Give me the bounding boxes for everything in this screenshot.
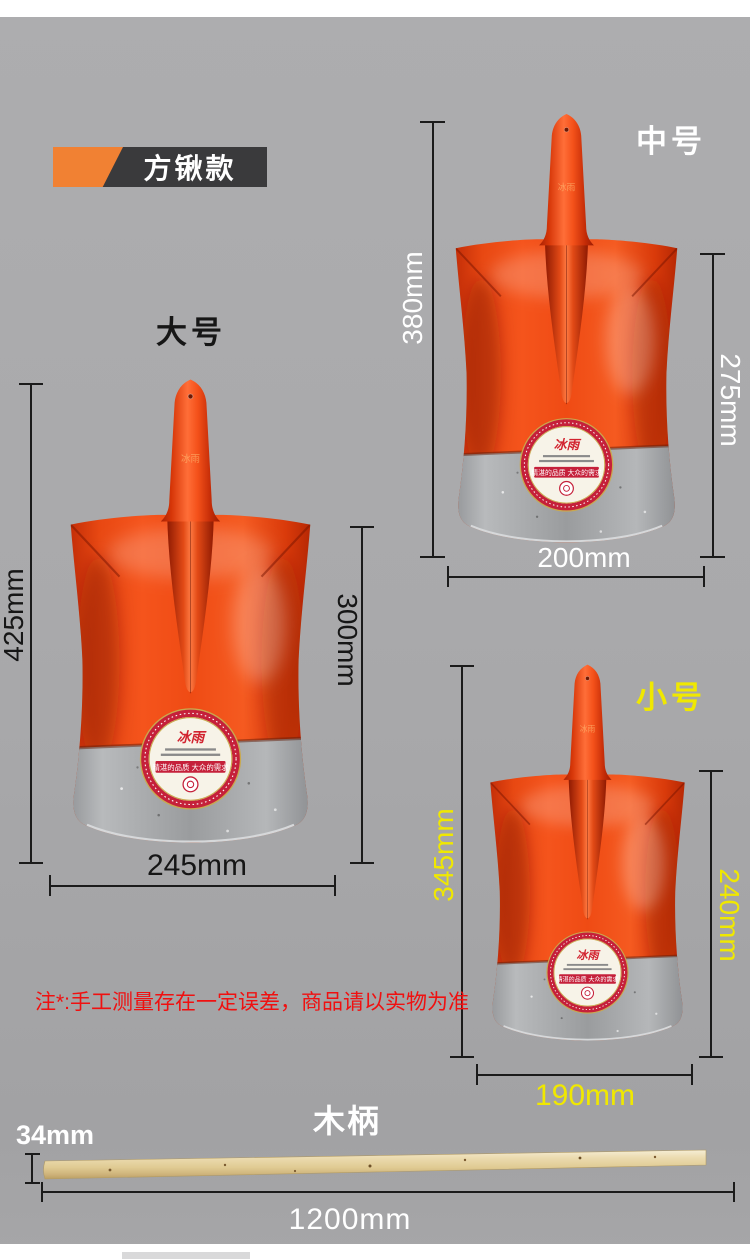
small-blade-height-line [710,771,712,1058]
wooden-handle-photo [40,1146,710,1186]
handle-title: 木柄 [287,1096,407,1142]
size-label-large: 大号 [156,307,226,352]
tick [700,556,725,558]
handle-diameter-line [31,1154,33,1183]
tick [700,253,725,255]
style-banner: 方锹款 [53,147,267,187]
shovel-photo-small [480,661,695,1057]
tick [420,121,445,123]
tick [49,875,51,896]
tick [350,526,374,528]
small-total-height-label: 345mm [429,795,459,915]
tick [19,862,43,864]
large-total-height-label: 425mm [0,555,29,675]
tick [350,862,374,864]
tick [450,1056,474,1058]
tick [699,1056,723,1058]
tick [25,1182,40,1184]
tick [334,875,336,896]
large-total-height-line [30,384,32,864]
small-blade-height-label: 240mm [714,855,744,975]
bottom-white-strip [0,1244,750,1259]
tick [450,665,474,667]
product-dimension-image: 冰雨 冰雨 精湛的品质 大众的需求 方 [0,0,750,1259]
tick [703,566,705,587]
tick [476,1064,478,1085]
top-white-strip [0,0,750,17]
shovel-photo-large [58,375,323,863]
tick [699,770,723,772]
medium-total-height-line [432,122,434,558]
banner-accent-shape [53,147,123,187]
tick [420,556,445,558]
medium-blade-width-line [448,576,705,578]
tick [19,383,43,385]
handle-length-line [42,1191,735,1193]
large-blade-width-label: 245mm [137,851,257,881]
medium-total-height-label: 380mm [398,238,428,358]
handle-length-label: 1200mm [280,1203,420,1237]
medium-blade-height-label: 275mm [715,340,745,460]
tick [447,566,449,587]
small-blade-width-label: 190mm [525,1081,645,1111]
tick [733,1182,735,1202]
tick [691,1064,693,1085]
small-blade-width-line [477,1074,692,1076]
measurement-disclaimer: 注*:手工测量存在一定误差，商品请以实物为准 [35,986,469,1016]
tick [25,1153,40,1155]
shovel-photo-medium [444,110,689,561]
tick [41,1182,43,1202]
large-blade-width-line [50,885,335,887]
bottom-gray-box [122,1252,250,1259]
medium-blade-height-line [712,254,714,558]
large-blade-height-label: 300mm [332,580,362,700]
banner-title: 方锹款 [119,147,261,187]
medium-blade-width-label: 200mm [524,543,644,573]
